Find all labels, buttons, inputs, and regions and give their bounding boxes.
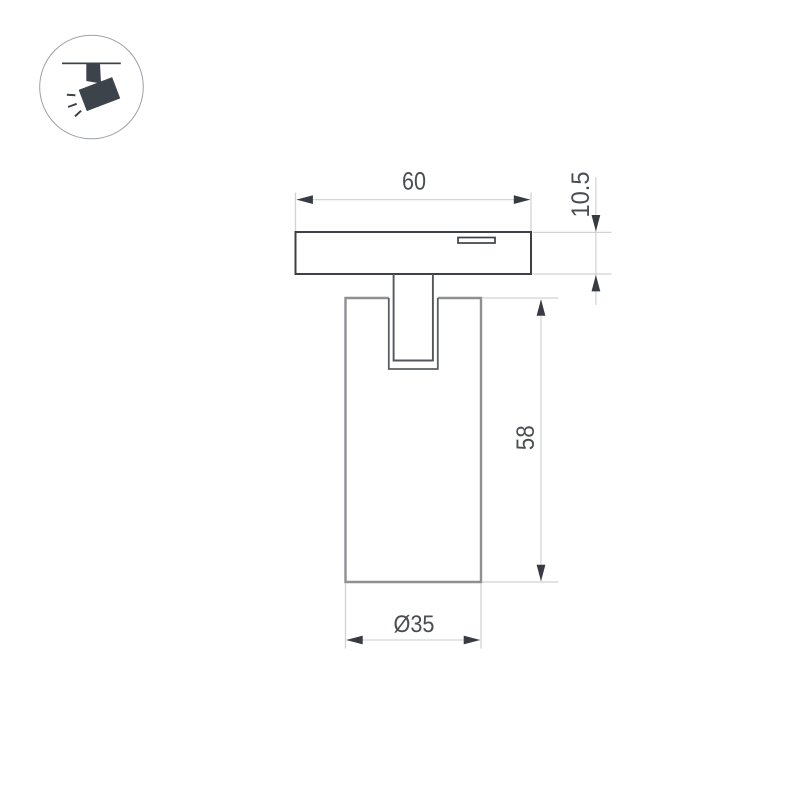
svg-text:10.5: 10.5 xyxy=(567,172,595,218)
svg-text:58: 58 xyxy=(512,425,540,450)
svg-text:60: 60 xyxy=(402,167,426,195)
svg-text:Ø35: Ø35 xyxy=(393,611,434,638)
